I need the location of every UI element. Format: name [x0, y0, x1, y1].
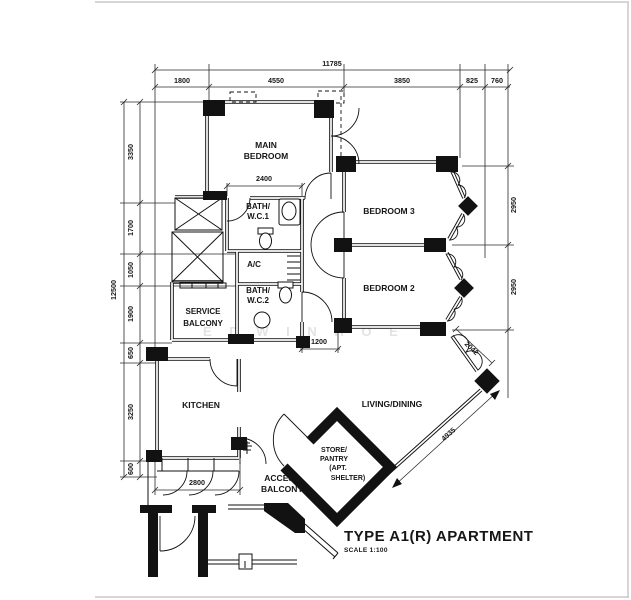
bedroom3-label: BEDROOM 3: [363, 206, 415, 216]
balcony-corner-wall: [264, 503, 305, 533]
balcony-railing: [148, 462, 338, 564]
dim-right-seg-2: 2950: [509, 279, 518, 295]
page-border: [95, 2, 629, 598]
dim-left-seg-4: 1900: [126, 306, 135, 322]
floor-plan-drawing: E D W I N H O E 11785 1800 4550 3850 825…: [0, 0, 631, 600]
service-balcony-label: BALCONY: [183, 319, 223, 328]
dim-bath1-width: 2400: [256, 174, 272, 183]
drawing-scale: SCALE 1:100: [344, 547, 388, 554]
store-pantry-label: STORE/: [321, 447, 347, 454]
store-pantry-label: (APT.: [329, 465, 347, 472]
dim-left-seg-5: 650: [126, 347, 135, 359]
bath-wc1-label: BATH/: [246, 202, 271, 211]
store-pantry-label: PANTRY: [320, 456, 348, 463]
ac-ledge-label: A/C: [247, 260, 261, 269]
arrowhead: [392, 478, 402, 488]
title-block: TYPE A1(R) APARTMENT SCALE 1:100: [344, 528, 533, 554]
dim-left-seg-6: 3250: [126, 404, 135, 420]
dim-left-seg-7: 600: [126, 463, 135, 475]
dim-right-seg-1: 2950: [509, 197, 518, 213]
floor-plan-page: E D W I N H O E 11785 1800 4550 3850 825…: [0, 0, 631, 600]
bath-wc1-label: W.C.1: [247, 212, 269, 221]
drawing-title: TYPE A1(R) APARTMENT: [344, 528, 533, 545]
kitchen-window-sill: [157, 458, 239, 471]
dim-top-seg-4: 825: [466, 76, 478, 85]
sink-symbol: [254, 312, 270, 328]
sink-symbol: [282, 202, 296, 220]
shaft-cross-hatch: [172, 198, 223, 282]
kitchen-label: KITCHEN: [182, 400, 220, 410]
dim-left-overall: 12500: [109, 280, 118, 300]
dim-bay-long: 4935: [439, 425, 457, 442]
dim-top-seg-2: 4550: [268, 76, 284, 85]
dim-top-overall: 11785: [322, 59, 342, 68]
main-bedroom-label: MAIN: [255, 140, 277, 150]
main-bedroom-label: BEDROOM: [244, 151, 288, 161]
access-balcony-label: BALCONY: [261, 484, 303, 494]
dim-left-seg-1: 3350: [126, 144, 135, 160]
dim-corridor-width: 1200: [311, 337, 327, 346]
stair-wall: [148, 505, 158, 577]
bath-wc2-label: W.C.2: [247, 296, 269, 305]
bedroom2-label: BEDROOM 2: [363, 283, 415, 293]
walls: [157, 102, 481, 477]
stair-wall: [198, 505, 208, 577]
dim-kitchen-width: 2800: [189, 478, 205, 487]
service-balcony-label: SERVICE: [186, 307, 222, 316]
living-dining-label: LIVING/DINING: [362, 399, 423, 409]
store-pantry-label: SHELTER): [331, 475, 365, 482]
ac-louver-lines: [287, 256, 300, 280]
arrowhead: [490, 390, 500, 400]
dim-left-seg-2: 1700: [126, 220, 135, 236]
access-balcony-label: ACCESS: [264, 473, 300, 483]
bath-wc2-label: BATH/: [246, 286, 271, 295]
dim-top-seg-1: 1800: [174, 76, 190, 85]
dim-top-seg-5: 760: [491, 76, 503, 85]
dim-left-seg-3: 1050: [126, 262, 135, 278]
dim-top-seg-3: 3850: [394, 76, 410, 85]
